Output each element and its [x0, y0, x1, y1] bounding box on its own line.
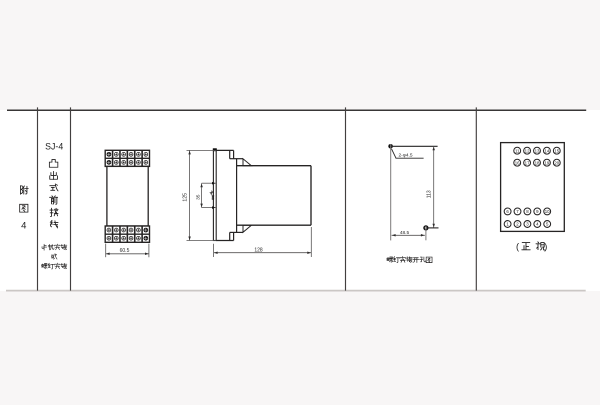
- svg-text:12: 12: [525, 148, 530, 153]
- svg-text:): ): [544, 241, 547, 251]
- svg-text:60.5: 60.5: [120, 248, 130, 254]
- svg-text:SJ-4: SJ-4: [45, 142, 63, 152]
- svg-text:4: 4: [21, 221, 26, 232]
- svg-text:(: (: [516, 241, 519, 251]
- svg-text:11: 11: [515, 148, 520, 153]
- svg-text:128: 128: [254, 247, 263, 253]
- svg-text:35: 35: [196, 194, 202, 200]
- svg-text:17: 17: [525, 160, 530, 165]
- svg-text:16: 16: [515, 160, 520, 165]
- svg-text:2-φ4.5: 2-φ4.5: [398, 153, 412, 159]
- svg-text:19: 19: [544, 160, 549, 165]
- svg-text:18: 18: [535, 160, 540, 165]
- svg-text:10: 10: [545, 209, 550, 214]
- svg-text:113: 113: [426, 190, 432, 198]
- svg-text:48.5: 48.5: [400, 230, 410, 236]
- svg-text:14: 14: [544, 148, 549, 153]
- svg-text:15: 15: [554, 148, 559, 153]
- svg-text:13: 13: [535, 148, 540, 153]
- svg-text:125: 125: [182, 193, 188, 202]
- svg-text:20: 20: [554, 160, 559, 165]
